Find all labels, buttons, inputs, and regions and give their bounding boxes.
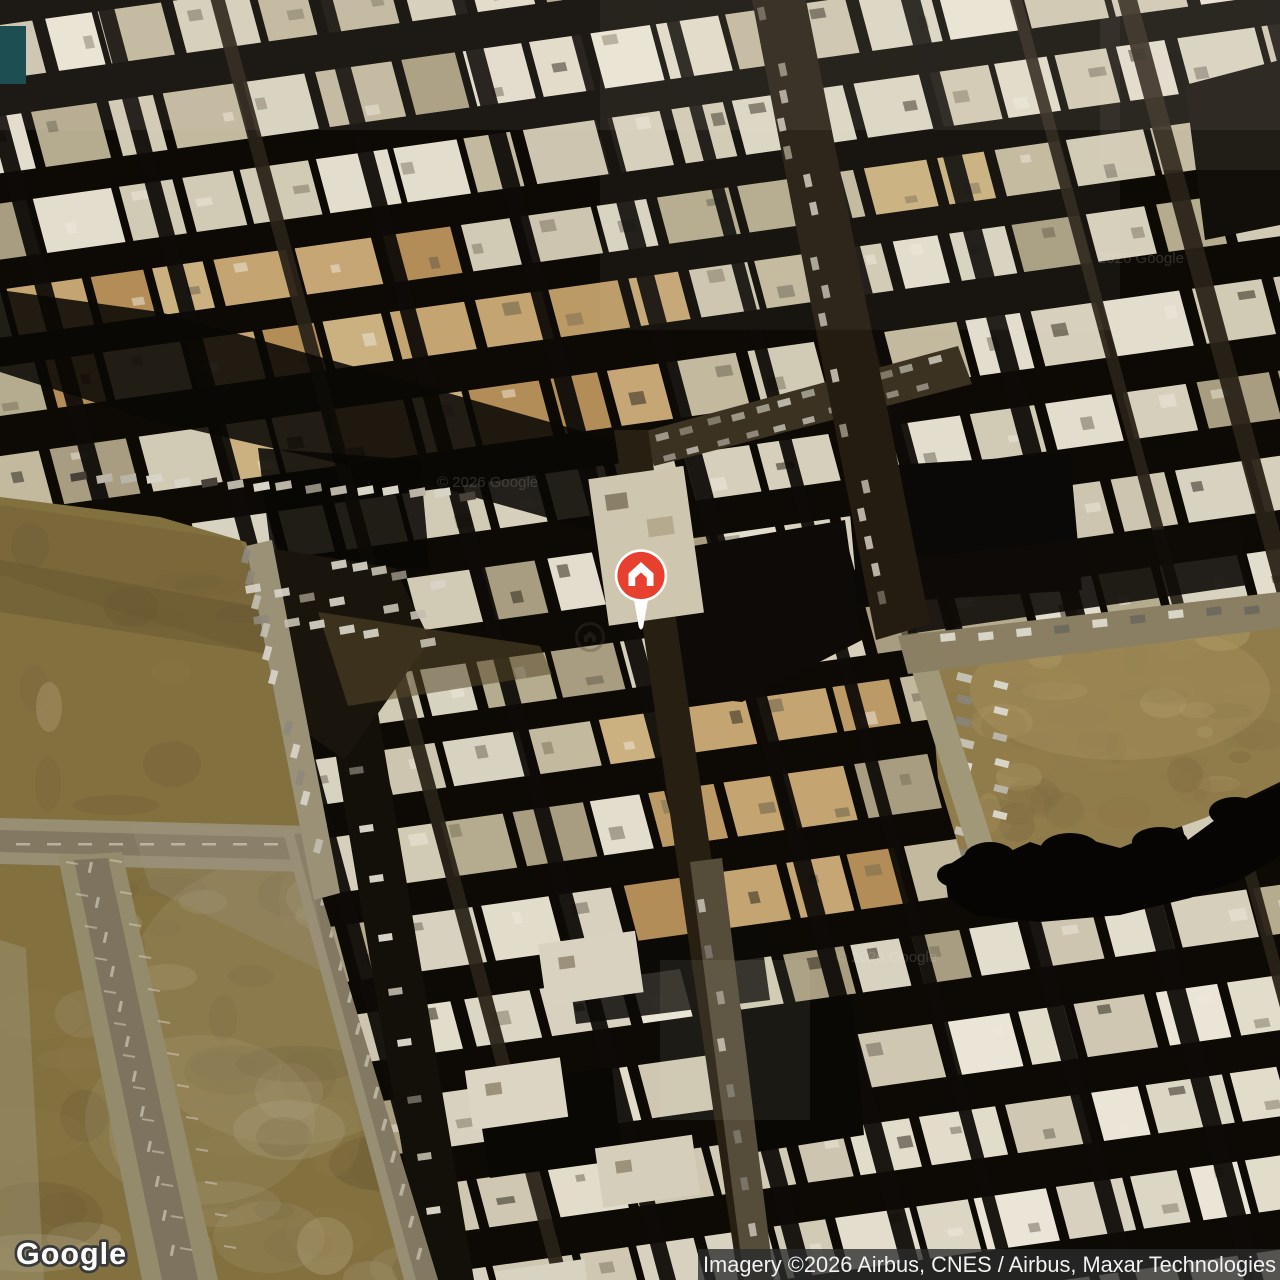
svg-text:© 2026 Google: © 2026 Google: [437, 474, 538, 491]
svg-text:Imagery ©2026 Airbus, CNES / A: Imagery ©2026 Airbus, CNES / Airbus, Max…: [703, 1252, 1276, 1277]
svg-text:2026 Google: 2026 Google: [1098, 250, 1184, 267]
svg-text:© 2026 Google: © 2026 Google: [836, 949, 937, 966]
svg-text:Google: Google: [16, 1237, 127, 1271]
